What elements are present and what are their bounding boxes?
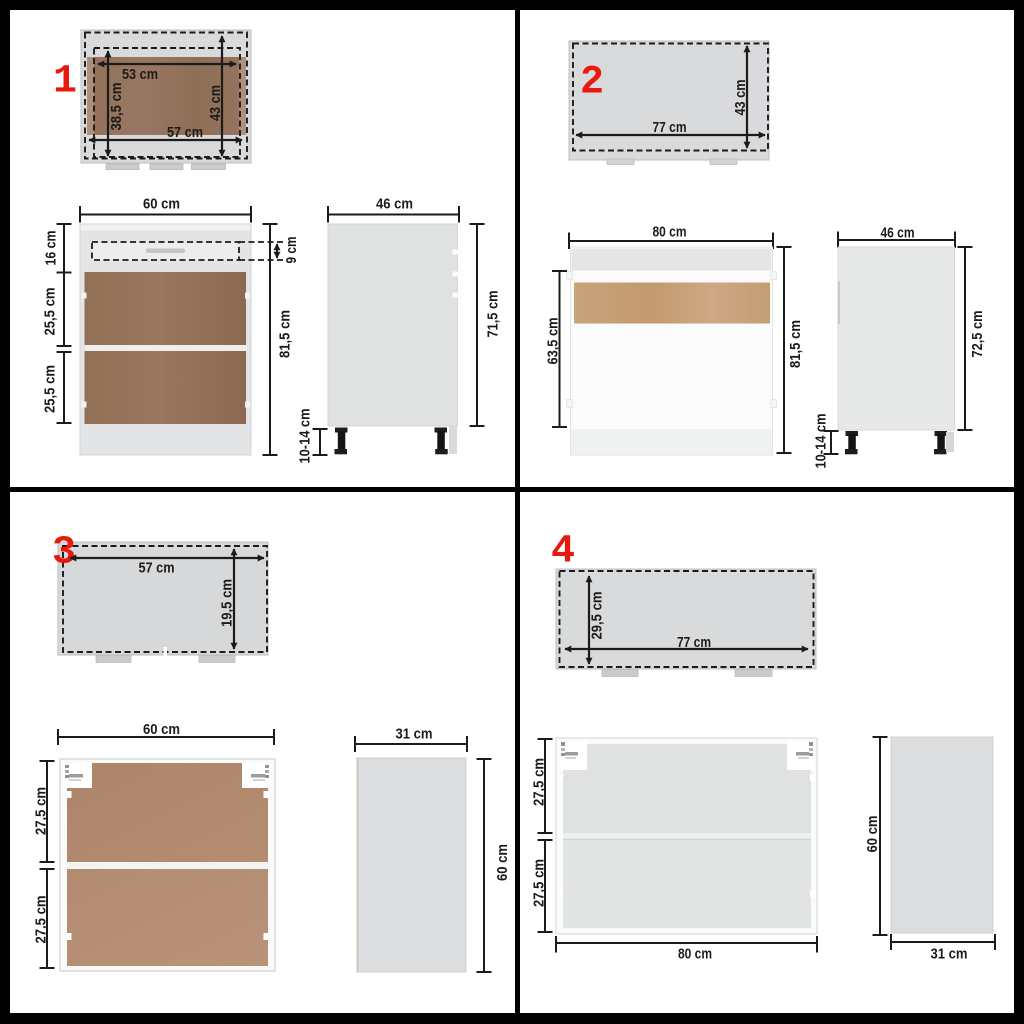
svg-text:57 cm: 57 cm: [139, 560, 175, 577]
svg-text:81,5 cm: 81,5 cm: [787, 320, 804, 368]
svg-text:80 cm: 80 cm: [653, 224, 687, 241]
svg-text:16 cm: 16 cm: [43, 231, 60, 266]
svg-text:46 cm: 46 cm: [376, 196, 413, 213]
svg-text:43 cm: 43 cm: [732, 80, 749, 116]
svg-text:31 cm: 31 cm: [396, 726, 433, 743]
svg-text:72,5 cm: 72,5 cm: [969, 311, 986, 358]
svg-text:25,5 cm: 25,5 cm: [42, 365, 59, 413]
svg-text:46 cm: 46 cm: [881, 225, 915, 242]
svg-text:10-14 cm: 10-14 cm: [813, 414, 830, 469]
svg-text:2: 2: [580, 61, 604, 106]
svg-text:57 cm: 57 cm: [167, 124, 203, 141]
svg-text:19,5 cm: 19,5 cm: [219, 579, 236, 627]
svg-text:80 cm: 80 cm: [678, 946, 712, 963]
svg-text:77 cm: 77 cm: [677, 634, 711, 651]
svg-text:60 cm: 60 cm: [143, 721, 180, 738]
svg-text:60 cm: 60 cm: [143, 196, 180, 213]
svg-text:4: 4: [551, 530, 575, 575]
svg-text:31 cm: 31 cm: [931, 946, 968, 963]
svg-text:81,5 cm: 81,5 cm: [277, 310, 294, 358]
svg-text:60 cm: 60 cm: [864, 816, 881, 853]
svg-text:27,5 cm: 27,5 cm: [531, 758, 548, 806]
svg-text:43 cm: 43 cm: [207, 85, 224, 121]
svg-text:3: 3: [52, 531, 76, 576]
svg-text:53 cm: 53 cm: [122, 66, 158, 83]
svg-text:10-14 cm: 10-14 cm: [297, 409, 314, 464]
svg-text:1: 1: [53, 60, 77, 105]
svg-text:38,5 cm: 38,5 cm: [108, 83, 125, 131]
svg-text:60 cm: 60 cm: [494, 844, 511, 881]
svg-text:9 cm: 9 cm: [283, 237, 300, 264]
svg-text:77 cm: 77 cm: [653, 119, 687, 136]
svg-text:63,5 cm: 63,5 cm: [545, 318, 562, 365]
svg-text:27,5 cm: 27,5 cm: [33, 787, 50, 835]
svg-text:25,5 cm: 25,5 cm: [42, 288, 59, 336]
svg-text:71,5 cm: 71,5 cm: [485, 291, 502, 338]
svg-text:29,5 cm: 29,5 cm: [589, 592, 606, 640]
svg-text:27,5 cm: 27,5 cm: [531, 859, 548, 907]
svg-text:27,5 cm: 27,5 cm: [33, 896, 50, 944]
